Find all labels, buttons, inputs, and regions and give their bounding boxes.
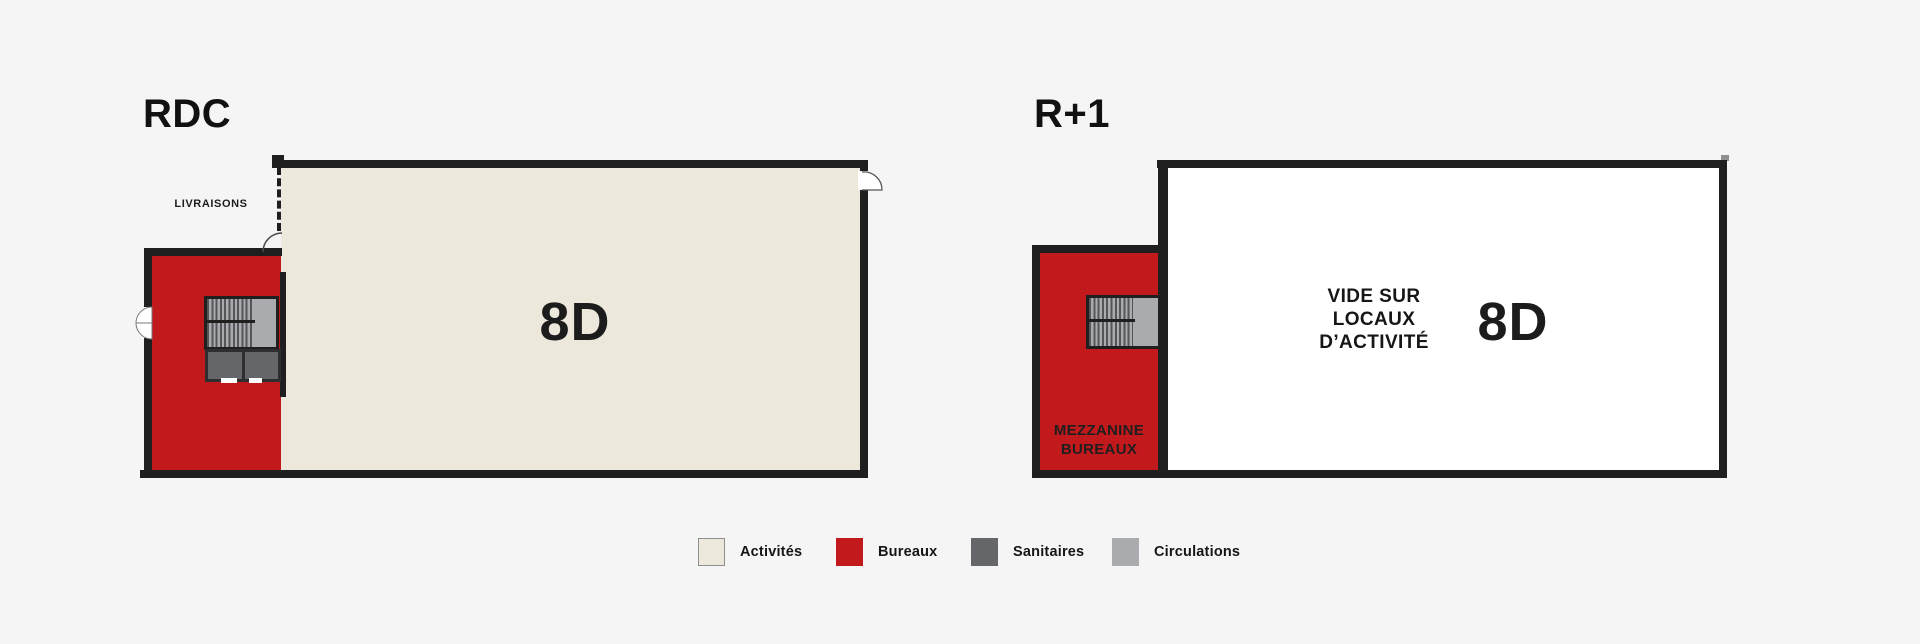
rdc-delivery-dashed-line [277, 167, 281, 231]
r1-mezzanine-label: MEZZANINE BUREAUX [1040, 421, 1158, 459]
rdc-sanitary-door-gap-right [249, 378, 262, 383]
rdc-wall-left-upper [144, 248, 152, 307]
circulations-swatch-icon [1112, 538, 1139, 566]
sanitaires-swatch-icon [971, 538, 998, 566]
rdc-staircase-divider [207, 320, 255, 323]
activites-swatch-icon [698, 538, 725, 566]
rdc-wall-right-lower [860, 190, 868, 478]
r1-mezzanine-top-wall [1032, 245, 1168, 253]
rdc-unit-label: 8D [475, 291, 675, 353]
r1-staircase-treads [1089, 298, 1133, 346]
r1-unit-label: 8D [1413, 291, 1613, 353]
legend-item-activites: Activités [698, 538, 802, 566]
legend-item-sanitaires: Sanitaires [971, 538, 1084, 566]
bureaux-swatch-icon [836, 538, 863, 566]
rdc-sanitary-door-gap-left [221, 378, 237, 383]
rdc-title: RDC [143, 92, 231, 137]
rdc-staircase-treads [207, 299, 253, 347]
r1-title: R+1 [1034, 92, 1110, 137]
legend-label-sanitaires: Sanitaires [1013, 544, 1084, 560]
r1-staircase-divider [1089, 319, 1135, 322]
rdc-entrance-double-door-icon [130, 304, 154, 342]
legend-item-circulations: Circulations [1112, 538, 1240, 566]
floor-plan-sheet: RDC LIVRAISONS [0, 0, 1920, 644]
rdc-wall-bottom [140, 470, 868, 478]
rdc-delivery-door-arc-icon [256, 226, 286, 256]
rdc-wall-top [276, 160, 868, 168]
legend-item-bureaux: Bureaux [836, 538, 937, 566]
rdc-exit-door-arc-icon [856, 168, 886, 194]
r1-wall-bottom [1032, 470, 1727, 478]
legend-label-circulations: Circulations [1154, 544, 1240, 560]
legend-label-activites: Activités [740, 544, 802, 560]
r1-wall-right [1719, 160, 1727, 478]
r1-wall-left [1032, 245, 1040, 478]
r1-wall-top [1157, 160, 1727, 168]
legend-label-bureaux: Bureaux [878, 544, 937, 560]
rdc-delivery-label: LIVRAISONS [150, 198, 272, 210]
rdc-wall-left-lower [144, 338, 152, 470]
